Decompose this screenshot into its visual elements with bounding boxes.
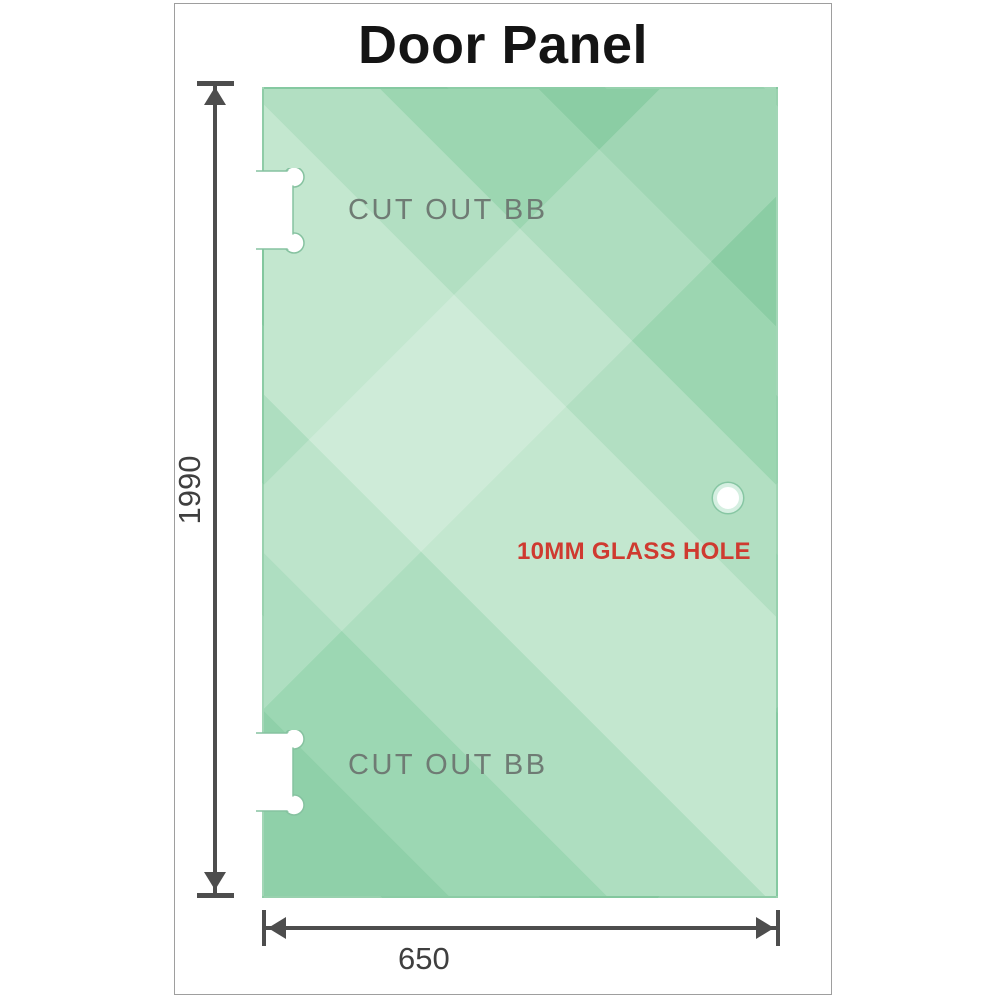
- width-dimension-label: 650: [398, 941, 450, 977]
- diagram-canvas: Door Panel CUT OUT BB CUT OUT BB 10MM GL…: [0, 0, 1000, 1000]
- height-dimension-line: [213, 84, 217, 898]
- page-title: Door Panel: [174, 14, 832, 76]
- cutout-bottom-label: CUT OUT BB: [348, 749, 608, 782]
- glass-hole-label: 10MM GLASS HOLE: [517, 538, 751, 566]
- arrow-left-icon: [268, 917, 286, 939]
- cutout-top-label: CUT OUT BB: [348, 194, 608, 227]
- height-dimension-cap-bottom: [197, 893, 234, 898]
- arrow-right-icon: [756, 917, 774, 939]
- width-dimension-tick-right: [776, 910, 780, 946]
- width-dimension-line: [266, 926, 776, 930]
- hinge-cutout-bottom: [256, 730, 310, 820]
- arrow-up-icon: [204, 87, 226, 105]
- arrow-down-icon: [204, 872, 226, 890]
- glass-hole-icon: [713, 483, 743, 513]
- hinge-cutout-top: [256, 168, 310, 258]
- height-dimension-label: 1990: [172, 430, 208, 550]
